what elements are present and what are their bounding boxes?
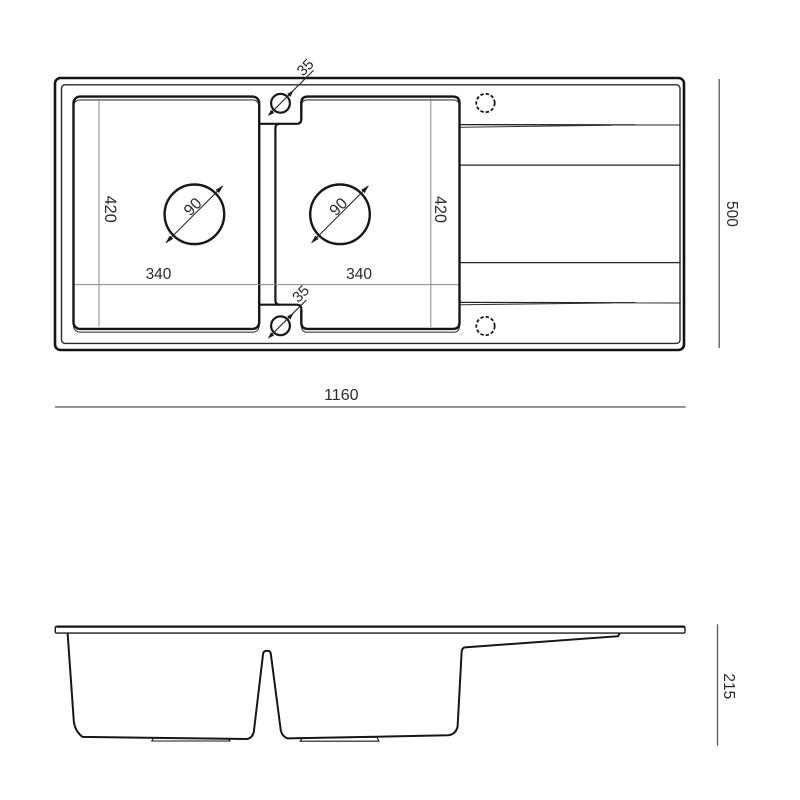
svg-text:500: 500 <box>723 201 740 227</box>
svg-text:420: 420 <box>431 196 449 223</box>
svg-text:90: 90 <box>181 195 206 220</box>
svg-text:420: 420 <box>101 196 119 223</box>
svg-text:35: 35 <box>289 282 313 306</box>
svg-text:1160: 1160 <box>324 387 359 404</box>
svg-text:340: 340 <box>146 266 172 283</box>
svg-text:90: 90 <box>327 195 352 220</box>
svg-text:35: 35 <box>294 56 318 80</box>
svg-text:340: 340 <box>346 266 372 283</box>
svg-text:215: 215 <box>720 673 737 699</box>
